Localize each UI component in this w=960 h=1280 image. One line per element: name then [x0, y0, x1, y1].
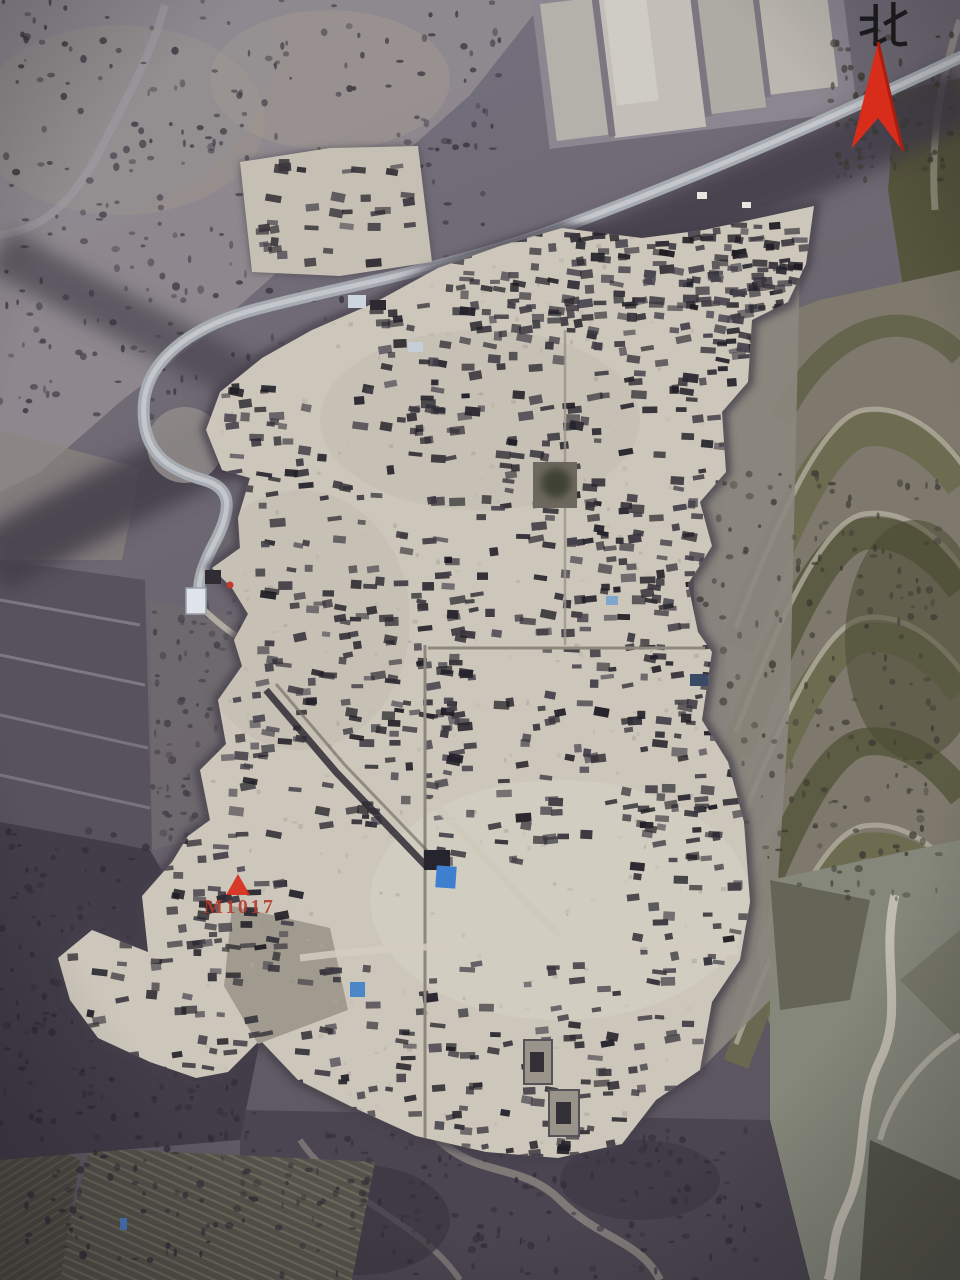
aerial-photo: 北 M1017	[0, 0, 960, 1280]
terrain-layer	[0, 0, 960, 1280]
north-indicator: 北	[840, 0, 936, 166]
triangle-marker-icon	[226, 874, 250, 896]
north-label-text: 北	[840, 0, 841, 1]
north-arrow-icon	[848, 40, 908, 155]
photo-vignette	[0, 0, 960, 1280]
tomb-label: M1017	[204, 896, 275, 919]
tomb-marker-m1017: M1017	[198, 866, 308, 928]
